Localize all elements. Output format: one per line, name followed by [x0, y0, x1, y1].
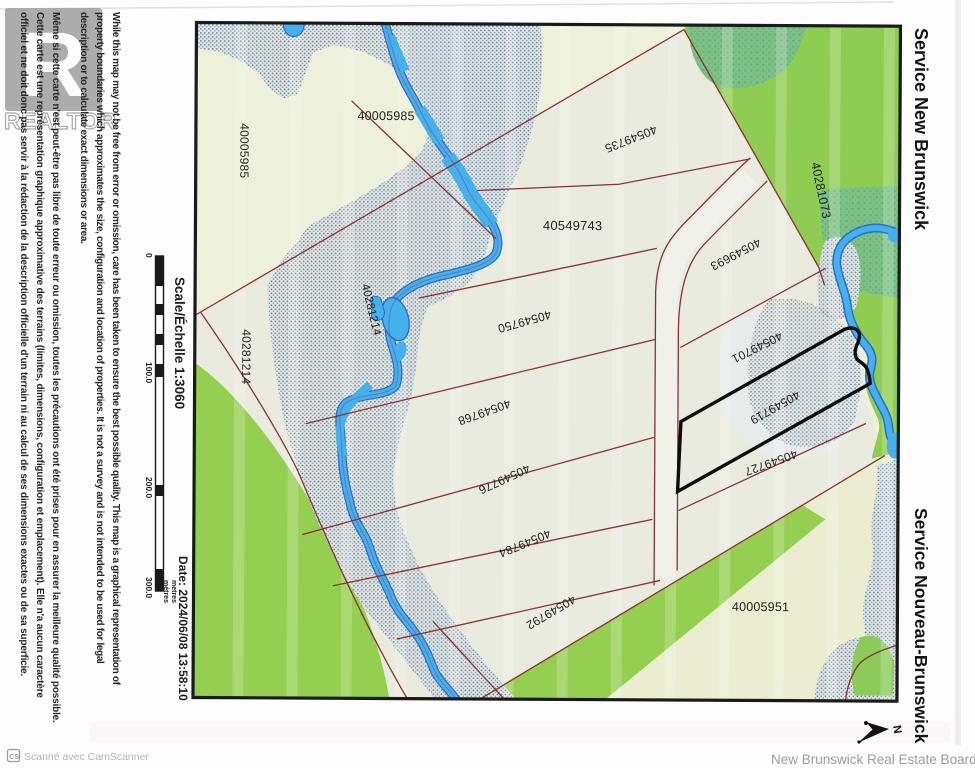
svg-text:property boundaries which appr: property boundaries which approximates t… — [94, 12, 105, 664]
svg-text:Même si cette carte n'est peut: Même si cette carte n'est peut-être pas … — [50, 12, 61, 723]
svg-text:200.0: 200.0 — [144, 477, 154, 499]
svg-text:description or to calculate ex: description or to calculate exact dimens… — [78, 12, 89, 244]
svg-text:officiel et ne doit donc pas s: officiel et ne doit donc pas servir à la… — [18, 12, 29, 677]
svg-text:40549743: 40549743 — [543, 218, 603, 233]
svg-text:40281214: 40281214 — [239, 329, 253, 384]
svg-text:métres: métres — [162, 580, 169, 603]
svg-text:300.0: 300.0 — [144, 577, 154, 599]
svg-text:100.0: 100.0 — [144, 362, 154, 384]
svg-text:Scanné avec CamScanner: Scanné avec CamScanner — [24, 751, 149, 763]
svg-text:40005985: 40005985 — [357, 109, 414, 123]
svg-text:Scale/Échelle 1:3060: Scale/Échelle 1:3060 — [172, 277, 187, 409]
svg-text:Service New Brunswick: Service New Brunswick — [911, 28, 931, 231]
svg-text:0: 0 — [144, 253, 154, 258]
svg-text:New Brunswick Real Estate Boar: New Brunswick Real Estate Board — [771, 752, 975, 767]
svg-text:CS: CS — [9, 754, 19, 761]
svg-text:Cette carte est une représenta: Cette carte est une représentation graph… — [34, 12, 45, 698]
svg-text:Date: 2024/06/08 13:58:10: Date: 2024/06/08 13:58:10 — [176, 556, 190, 701]
svg-text:40005985: 40005985 — [237, 123, 251, 178]
svg-text:metres: metres — [170, 580, 177, 603]
svg-text:Service Nouveau-Brunswick: Service Nouveau-Brunswick — [911, 508, 931, 744]
svg-text:40005951: 40005951 — [732, 600, 789, 614]
svg-text:While this map may not be free: While this map may not be free from erro… — [110, 12, 121, 686]
